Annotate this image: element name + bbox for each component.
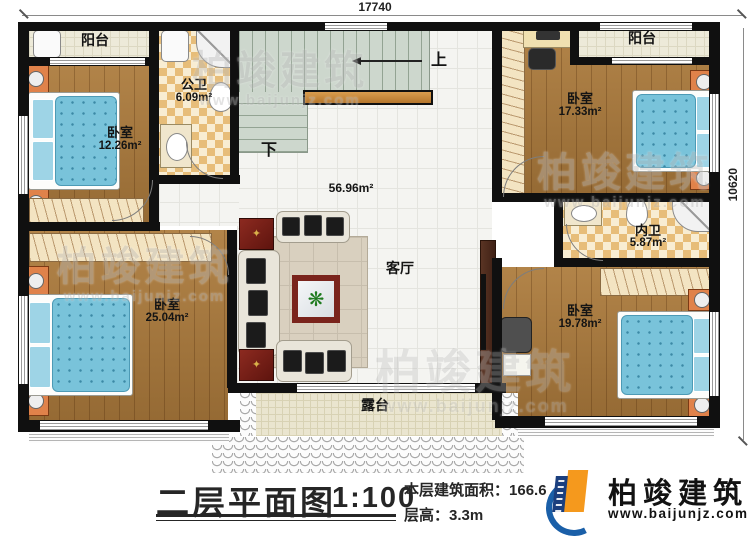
floor-area-label: 本层建筑面积：: [404, 482, 509, 499]
wall: [18, 22, 240, 31]
hallway-floor: [159, 182, 239, 226]
room-label-bedroom-tr: 卧室: [545, 92, 615, 107]
window: [19, 116, 28, 194]
dimension-tick: [737, 9, 747, 19]
floor-height-label: 层高：: [404, 507, 449, 524]
coffee-table: ❋: [292, 275, 340, 323]
window: [40, 421, 208, 430]
dimension-tick: [19, 9, 29, 19]
wardrobe: [29, 233, 212, 262]
room-label-bedroom-bl: 卧室: [132, 298, 202, 313]
sink-icon: [166, 133, 188, 161]
room-label-living: 客厅: [378, 260, 422, 276]
window: [710, 94, 719, 172]
floor-area-line: 本层建筑面积：166.6: [404, 479, 547, 500]
floor-height-value: 3.3m: [449, 507, 483, 524]
stair-up-arrow-icon: [352, 57, 361, 65]
sofa-cushion: [305, 352, 324, 374]
floor-plan-page: 17740 10620 上 下: [0, 0, 750, 541]
end-table: ✦: [239, 218, 274, 250]
sofa-cushion: [248, 290, 268, 316]
dimension-right-value: 10620: [726, 168, 740, 201]
stair-down-label: 下: [258, 142, 280, 160]
pillow: [32, 141, 54, 181]
window: [612, 58, 692, 64]
pillow: [32, 99, 54, 139]
dimension-right-line: [743, 28, 744, 440]
sink-icon: [571, 205, 597, 222]
room-area-bedroom-tl: 12.26m²: [85, 141, 155, 153]
desk-lamp-icon: [536, 31, 560, 40]
desk-chair: [528, 48, 556, 70]
sofa: [276, 211, 350, 243]
title-underline-thin: [156, 520, 396, 521]
stair-handrail: [303, 90, 433, 105]
wall: [149, 22, 159, 62]
room-area-bedroom-br: 19.78m²: [545, 319, 615, 331]
window: [710, 312, 719, 396]
side-table: [503, 354, 531, 376]
bed: [632, 90, 718, 172]
end-table: ✦: [239, 349, 274, 381]
room-label-terrace: 露台: [345, 397, 405, 413]
sink-icon: [161, 30, 189, 62]
room-area-bedroom-tr: 17.33m²: [545, 107, 615, 119]
wall: [159, 175, 240, 184]
sofa-cushion: [327, 350, 346, 372]
stair-up-label: 上: [428, 52, 450, 70]
room-area-bath-public: 6.09m²: [163, 93, 225, 105]
stair-direction-line: [360, 60, 422, 62]
wall: [492, 22, 502, 194]
sofa-cushion: [283, 350, 302, 372]
wall: [492, 258, 502, 420]
room-label-bath-public: 公卫: [163, 78, 225, 93]
sofa-cushion: [282, 217, 300, 236]
wall: [554, 258, 720, 267]
dimension-top-value: 17740: [340, 0, 410, 14]
mattress: [621, 315, 693, 395]
floor-height-line: 层高：3.3m: [404, 504, 483, 525]
dimension-top-line: [22, 15, 744, 16]
sofa-cushion: [326, 217, 344, 236]
room-area-living: 56.96m²: [316, 182, 386, 194]
room-area-bath-private: 5.87m²: [618, 238, 678, 250]
room-label-balcony-tr: 阳台: [602, 30, 682, 46]
roof-tile-band: [212, 437, 524, 473]
wall: [227, 230, 237, 388]
bathroom-vanity: [564, 200, 602, 226]
pillow: [29, 302, 51, 344]
mattress: [636, 94, 696, 168]
mattress: [52, 298, 130, 392]
brand-logo-icon: [542, 466, 604, 530]
bed: [617, 311, 717, 399]
room-label-bedroom-br: 卧室: [545, 304, 615, 319]
pillow: [29, 346, 51, 388]
sofa: [276, 340, 352, 382]
terrace-rail-right: [502, 393, 518, 436]
floor-area-value: 166.6: [509, 482, 547, 499]
tv-icon: [481, 274, 486, 350]
terrace-sliding-door: [297, 384, 475, 392]
window: [325, 23, 387, 30]
armchair: [500, 317, 532, 353]
sofa-cushion: [304, 215, 322, 236]
wall: [230, 22, 239, 184]
terrace-rail-left: [240, 393, 256, 436]
room-label-bedroom-tl: 卧室: [85, 126, 155, 141]
window: [50, 58, 145, 65]
sofa-cushion: [246, 258, 266, 284]
bed: [25, 294, 133, 396]
sofa-cushion: [246, 322, 266, 348]
plant-icon: ❋: [308, 287, 325, 312]
room-area-bedroom-bl: 25.04m²: [132, 313, 202, 325]
room-label-balcony-tl: 阳台: [55, 32, 135, 48]
eave-band-right: [518, 428, 714, 438]
sofa: [238, 250, 280, 356]
wall: [18, 222, 160, 231]
window: [600, 23, 692, 30]
brand-website: www.baijunjz.com: [608, 506, 749, 521]
window: [545, 417, 697, 426]
eave-band-left: [29, 432, 229, 443]
window: [19, 296, 28, 384]
